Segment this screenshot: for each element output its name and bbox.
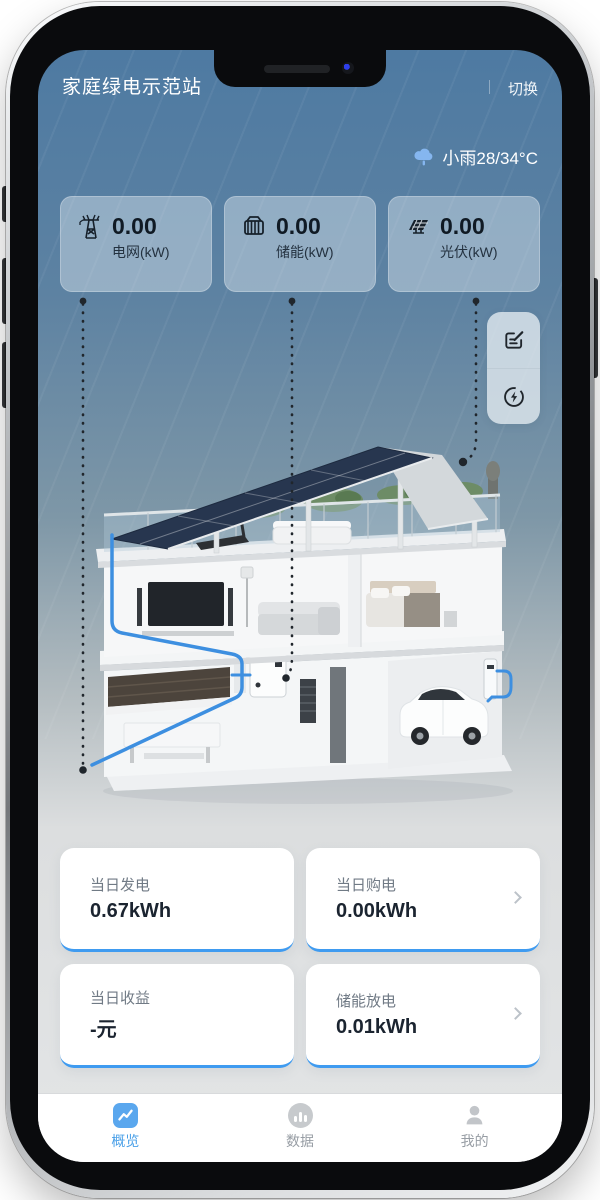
- tab-label: 数据: [286, 1131, 314, 1151]
- tab-label: 我的: [461, 1131, 489, 1151]
- card-storage-discharge[interactable]: 储能放电 0.01kWh: [306, 964, 540, 1068]
- grid-power-value: 0.00: [112, 213, 157, 240]
- storage-power-value: 0.00: [276, 213, 321, 240]
- daily-summary: 当日发电 0.67kWh 当日购电 0.00kWh 当日收益 -元 储能放电 0…: [60, 848, 540, 1068]
- realtime-stats: 0.00 电网(kW) 0.00 储能(kW): [60, 196, 540, 292]
- edit-button[interactable]: [487, 312, 540, 368]
- power-tower-icon: [76, 212, 104, 240]
- card-daily-purchase[interactable]: 当日购电 0.00kWh: [306, 848, 540, 952]
- speaker-grille: [264, 65, 330, 73]
- tab-mine[interactable]: 我的: [387, 1094, 562, 1162]
- pv-power-label: 光伏(kW): [440, 242, 540, 262]
- card-label: 当日发电: [90, 874, 294, 895]
- tab-label: 概览: [111, 1131, 139, 1151]
- app-screen: 家庭绿电示范站 切换 小雨28/34°C 0.00: [38, 50, 562, 1162]
- storage-power-label: 储能(kW): [276, 242, 376, 262]
- weather-info: 小雨28/34°C: [413, 144, 538, 169]
- card-label: 储能放电: [336, 990, 540, 1011]
- rain-cloud-icon: [413, 147, 435, 167]
- user-icon: [462, 1103, 487, 1128]
- solar-panel-icon: [404, 212, 432, 240]
- weather-text: 小雨28/34°C: [442, 144, 538, 169]
- card-daily-income[interactable]: 当日收益 -元: [60, 964, 294, 1068]
- pv-power-value: 0.00: [440, 213, 485, 240]
- tab-overview[interactable]: 概览: [38, 1094, 213, 1162]
- energy-circle-icon: [502, 385, 526, 409]
- stat-card-storage[interactable]: 0.00 储能(kW): [224, 196, 376, 292]
- card-value: 0.67kWh: [90, 900, 294, 923]
- card-value: 0.01kWh: [336, 1016, 540, 1039]
- tab-bar: 概览 数据 我的: [38, 1094, 562, 1162]
- card-label: 当日购电: [336, 874, 540, 895]
- stat-card-grid[interactable]: 0.00 电网(kW): [60, 196, 212, 292]
- edit-icon: [503, 329, 525, 351]
- page-title: 家庭绿电示范站: [62, 72, 202, 99]
- header-divider: [489, 80, 490, 94]
- grid-power-label: 电网(kW): [112, 242, 212, 262]
- notch: [214, 50, 386, 87]
- page: 家庭绿电示范站 切换 小雨28/34°C 0.00: [0, 0, 600, 1200]
- battery-storage-icon: [240, 212, 268, 240]
- fab-group: [487, 312, 540, 424]
- card-label: 当日收益: [90, 987, 294, 1008]
- data-bars-icon: [288, 1103, 313, 1128]
- house-illustration: [48, 435, 552, 835]
- stat-card-pv[interactable]: 0.00 光伏(kW): [388, 196, 540, 292]
- card-daily-generation[interactable]: 当日发电 0.67kWh: [60, 848, 294, 952]
- front-camera: [342, 62, 354, 74]
- overview-chart-icon: [113, 1103, 138, 1128]
- card-value: 0.00kWh: [336, 900, 540, 923]
- switch-station-button[interactable]: 切换: [508, 78, 538, 99]
- energy-button[interactable]: [487, 368, 540, 424]
- card-value: -元: [90, 1013, 294, 1042]
- tab-data[interactable]: 数据: [213, 1094, 388, 1162]
